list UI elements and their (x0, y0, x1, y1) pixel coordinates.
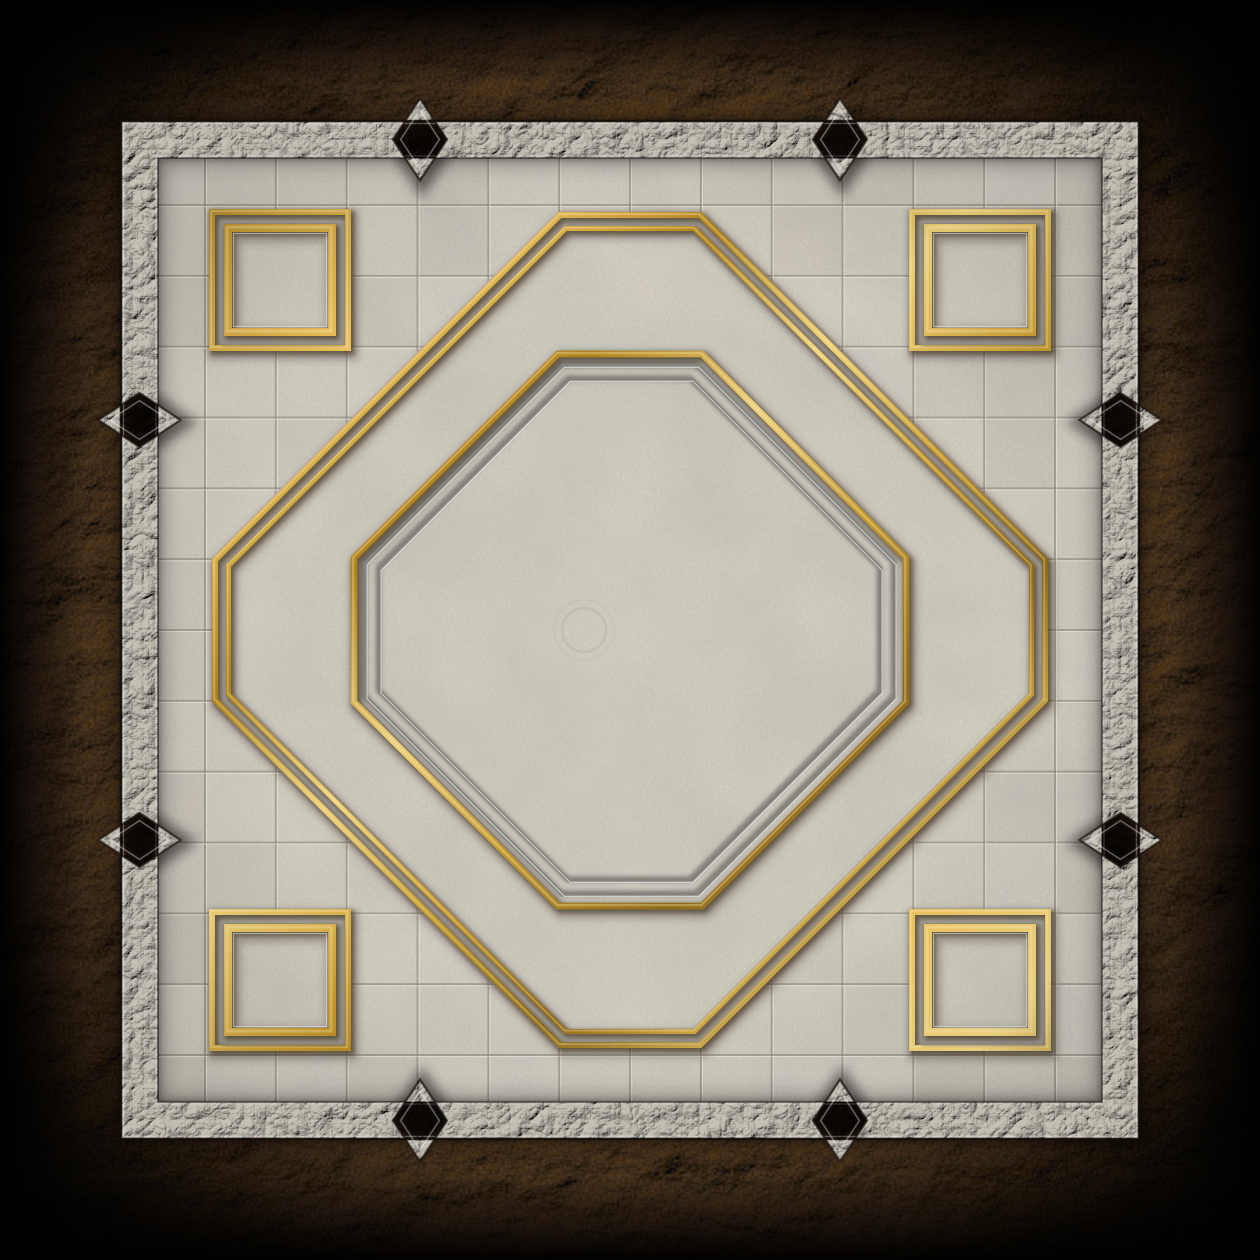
map-scene (0, 0, 1260, 1260)
dungeon-tile-map (0, 0, 1260, 1260)
corner-vignette (0, 0, 1260, 1260)
